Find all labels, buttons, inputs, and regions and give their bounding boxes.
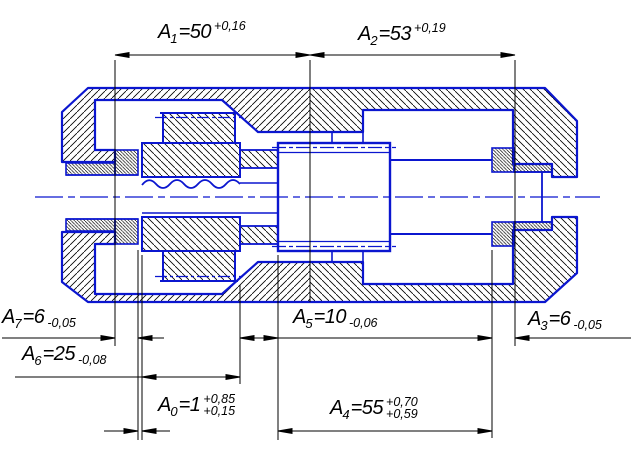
assembly-section-drawing (0, 0, 633, 459)
technical-drawing-canvas: A1=50+0,16 A2=53+0,19 A7=6-0,05 A6=25-0,… (0, 0, 633, 459)
arrow-a7-right (138, 336, 152, 341)
dim-a3-index: 3 (540, 318, 547, 333)
dim-a3-tol-bot: -0,05 (573, 319, 602, 331)
dim-a6-tolerance: -0,08 (78, 342, 107, 366)
arrow-a4-left (278, 429, 292, 434)
arrow-a6-left (142, 375, 156, 380)
dim-a5-tol-bot: -0,06 (349, 317, 378, 329)
left-bushing-body-bottom (66, 219, 115, 231)
dim-a2-value: =53 (379, 23, 411, 46)
dim-label-a1: A1=50+0,16 (158, 20, 246, 44)
arrow-a6-right (226, 375, 240, 380)
arrow-a1-left (115, 53, 129, 58)
dim-a1-index: 1 (170, 31, 177, 46)
dim-label-a4: A4=55+0,70+0,59 (330, 396, 418, 420)
gear-hub-bottom (142, 217, 240, 251)
dim-a4-value: =55 (351, 397, 383, 420)
left-bushing-flange-bottom (115, 219, 138, 244)
dim-a7-index: 7 (14, 316, 21, 331)
arrow-a3-right (515, 336, 529, 341)
right-bushing-body-top (514, 164, 552, 172)
dim-label-a5: A5=10-0,06 (293, 305, 378, 329)
dim-a7-tolerance: -0,05 (47, 305, 76, 329)
dim-a1-tol-top: +0,16 (214, 20, 246, 32)
right-bushing-flange-top (492, 148, 514, 172)
dim-a2-tol-top: +0,19 (414, 22, 446, 34)
dim-a6-tol-bot: -0,08 (78, 354, 107, 366)
right-bushing-flange-bottom (492, 222, 514, 246)
arrow-a0-right (142, 429, 156, 434)
dim-a7-tol-bot: -0,05 (47, 317, 76, 329)
dim-a0-tol-bot: +0,15 (203, 405, 235, 417)
dim-a4-tolerance: +0,70+0,59 (386, 396, 418, 420)
dim-a7-symbol: A (2, 306, 14, 329)
dim-a2-index: 2 (370, 33, 377, 48)
dim-a4-tol-bot: +0,59 (386, 408, 418, 420)
dim-a2-tol-bot (414, 34, 446, 46)
dim-label-a2: A2=53+0,19 (358, 22, 446, 46)
arrow-a5-right (264, 336, 278, 341)
arrow-a1-right (296, 53, 310, 58)
dim-a6-symbol: A (22, 343, 34, 366)
left-bushing-flange-top (115, 150, 138, 175)
arrow-a7-left (101, 336, 115, 341)
spacer-top (240, 150, 278, 168)
dim-a0-symbol: A (158, 394, 170, 417)
arrow-a2-right (501, 53, 515, 58)
arrow-a0-left (124, 429, 138, 434)
dim-a1-value: =50 (179, 21, 211, 44)
dim-a5-symbol: A (293, 306, 305, 329)
arrow-a3-left (478, 336, 492, 341)
arrow-a2-left (310, 53, 324, 58)
dim-a5-value: =10 (314, 306, 346, 329)
dim-label-a0: A0=1+0,85+0,15 (158, 393, 235, 417)
dim-a5-index: 5 (305, 316, 312, 331)
dim-a0-value: =1 (179, 394, 201, 417)
dim-a4-index: 4 (342, 407, 349, 422)
dim-a1-tolerance: +0,16 (214, 20, 246, 44)
dim-a4-symbol: A (330, 397, 342, 420)
dim-a6-index: 6 (34, 353, 41, 368)
spacer-bottom (240, 226, 278, 244)
dim-a2-tolerance: +0,19 (414, 22, 446, 46)
left-bushing-body-top (66, 163, 115, 175)
dim-label-a3: A3=6-0,05 (528, 307, 602, 331)
dim-a6-value: =25 (43, 343, 75, 366)
arrow-a4-right (478, 429, 492, 434)
dim-a0-index: 0 (170, 404, 177, 419)
dim-a0-tolerance: +0,85+0,15 (203, 393, 235, 417)
dim-label-a7: A7=6-0,05 (2, 305, 76, 329)
dim-a1-symbol: A (158, 21, 170, 44)
gear-hub-top (142, 143, 240, 177)
right-bushing-body-bottom (514, 222, 552, 230)
dim-a3-value: =6 (549, 308, 571, 331)
gear-spline-break-line (142, 180, 240, 188)
dim-a3-symbol: A (528, 308, 540, 331)
dim-a7-value: =6 (23, 306, 45, 329)
dim-a1-tol-bot (214, 32, 246, 44)
dim-a3-tolerance: -0,05 (573, 307, 602, 331)
dim-a2-symbol: A (358, 23, 370, 46)
dim-label-a6: A6=25-0,08 (22, 342, 107, 366)
arrow-a5-left (240, 336, 254, 341)
dim-a5-tolerance: -0,06 (349, 305, 378, 329)
